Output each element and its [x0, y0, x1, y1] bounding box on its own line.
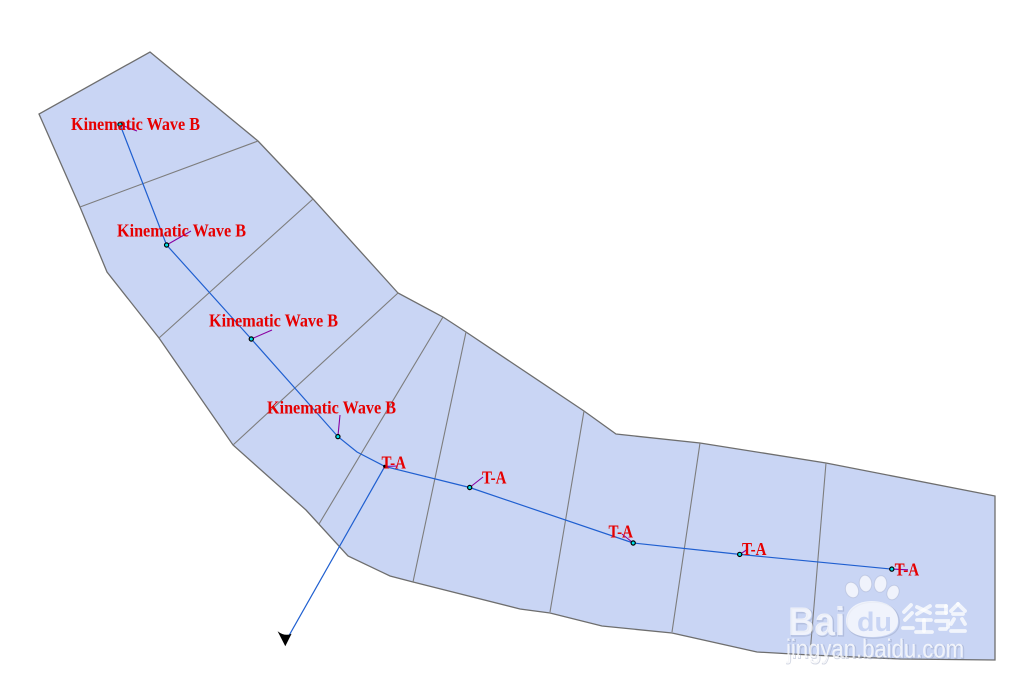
svg-text:Kinematic Wave B: Kinematic Wave B — [267, 398, 396, 418]
svg-text:T-A: T-A — [382, 453, 407, 473]
svg-text:T-A: T-A — [895, 560, 920, 580]
svg-text:Kinematic Wave B: Kinematic Wave B — [71, 114, 200, 134]
svg-text:du: du — [857, 607, 892, 637]
svg-text:T-A: T-A — [742, 539, 767, 559]
svg-text:Kinematic Wave B: Kinematic Wave B — [117, 220, 246, 240]
svg-text:T-A: T-A — [482, 468, 507, 488]
svg-text:T-A: T-A — [609, 522, 634, 542]
svg-text:jingyan.baidu.com: jingyan.baidu.com — [785, 634, 964, 664]
svg-text:Kinematic Wave B: Kinematic Wave B — [209, 311, 338, 331]
